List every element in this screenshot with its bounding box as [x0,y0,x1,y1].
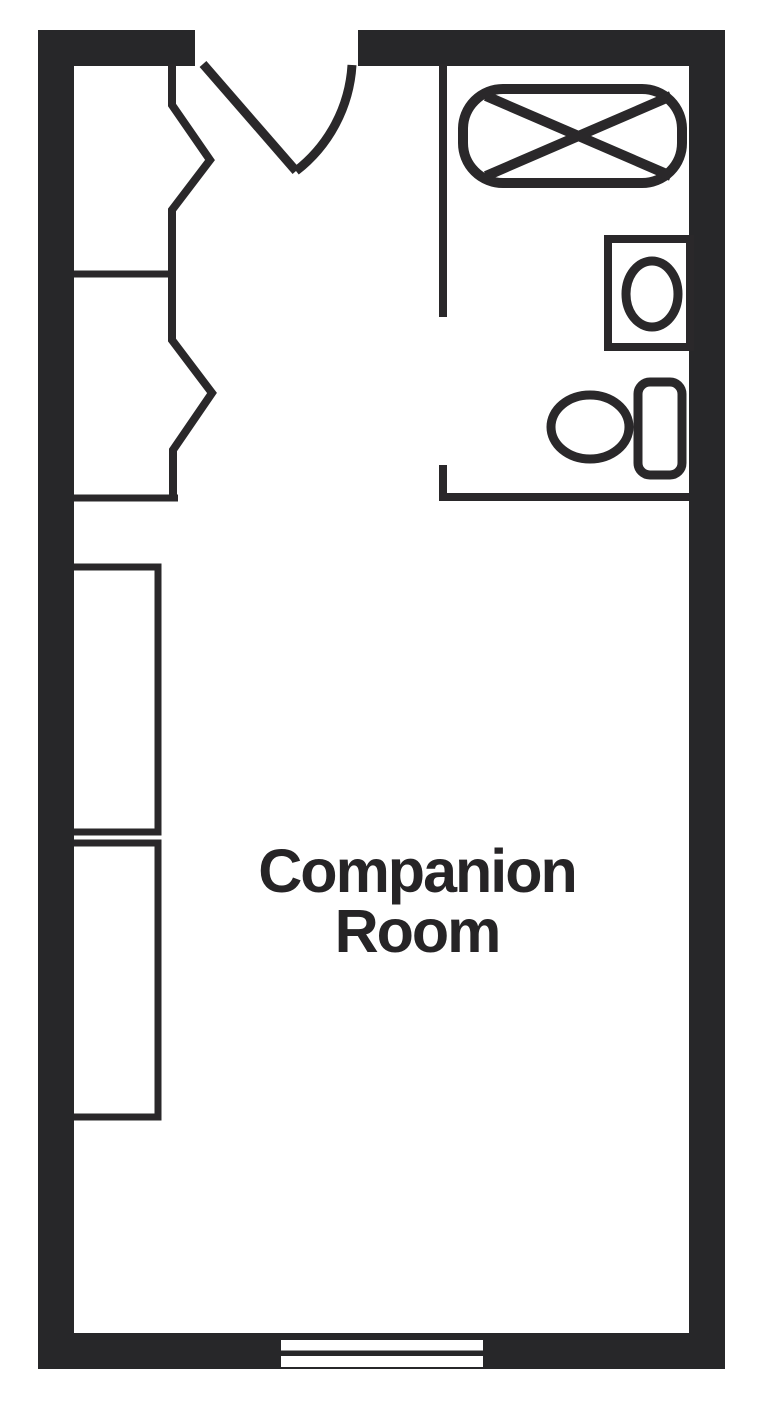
floor-plan-drawing: Companion Room [0,0,762,1404]
wall-right [689,30,725,1369]
window-icon [281,1340,483,1367]
toilet-icon [551,382,682,475]
sink-basin [626,261,678,327]
door-swing-arc [296,65,352,171]
bifold-door-icon [172,64,212,498]
floor-plan: Companion Room [0,0,762,1404]
room-label-line1: Companion [258,837,575,905]
toilet-tank [638,382,682,475]
wall-top-left-segment [38,30,195,66]
room-label: Companion Room [258,837,575,965]
closet-area [74,64,212,498]
wardrobes [74,567,158,1117]
exterior-walls [38,30,725,1369]
door-swing-icon [203,64,352,171]
bathroom-lower-wall [443,465,689,497]
wardrobe-icon [74,567,158,832]
bathtub-icon [463,89,682,183]
wardrobe-icon [74,843,158,1117]
door-leaf [203,64,296,171]
wall-top-right-segment [358,30,725,66]
wall-left [38,30,74,1369]
toilet-bowl [551,395,629,459]
window-mullion-line [281,1351,483,1357]
sink-icon [608,239,690,347]
room-label-line2: Room [335,897,500,965]
bathroom-area [443,64,690,497]
